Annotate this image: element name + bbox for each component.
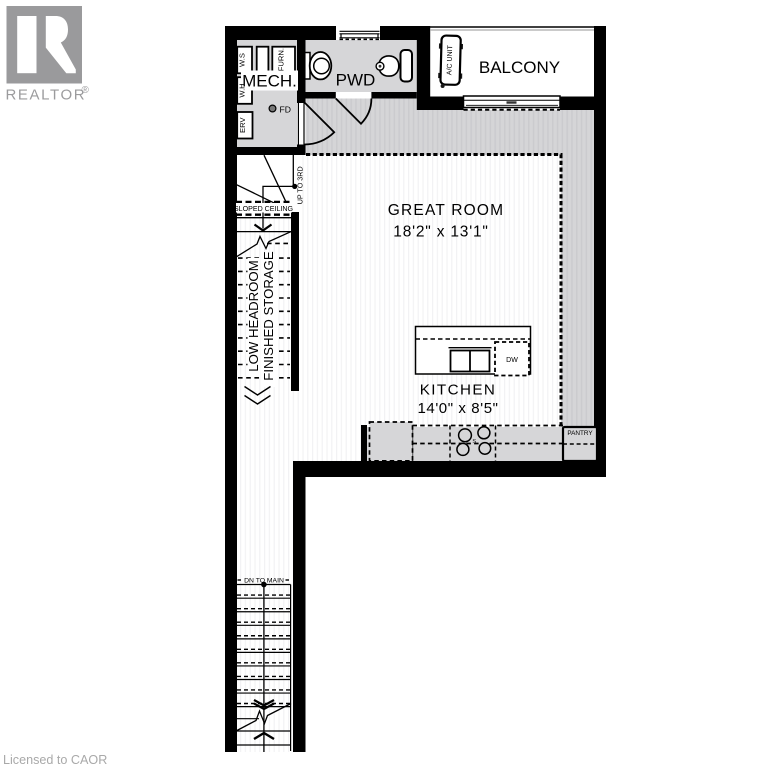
svg-text:Licensed to CAOR: Licensed to CAOR xyxy=(3,753,107,767)
svg-text:DW: DW xyxy=(506,357,518,364)
svg-text:SLOPED CEILING: SLOPED CEILING xyxy=(234,205,293,213)
svg-text:FINISHED STORAGE: FINISHED STORAGE xyxy=(261,251,276,381)
svg-text:®: ® xyxy=(82,85,90,96)
svg-text:ERV: ERV xyxy=(238,117,247,133)
svg-text:UP TO 3RD: UP TO 3RD xyxy=(296,166,305,204)
svg-text:BALCONY: BALCONY xyxy=(479,58,560,77)
svg-text:KITCHEN: KITCHEN xyxy=(420,382,496,399)
svg-text:A/C UNIT: A/C UNIT xyxy=(446,44,454,75)
svg-text:W.H: W.H xyxy=(238,83,247,97)
svg-text:PWD: PWD xyxy=(336,70,376,89)
svg-text:18'2" x 13'1": 18'2" x 13'1" xyxy=(393,224,488,241)
svg-text:GREAT ROOM: GREAT ROOM xyxy=(388,202,505,219)
svg-text:MECH.: MECH. xyxy=(242,72,297,91)
svg-text:PANTRY: PANTRY xyxy=(567,430,593,437)
svg-text:REALTOR: REALTOR xyxy=(6,87,87,104)
svg-text:W.S: W.S xyxy=(238,53,247,67)
svg-text:FURN.: FURN. xyxy=(277,48,286,71)
svg-text:FD: FD xyxy=(280,105,291,115)
svg-text:S: S xyxy=(472,439,476,445)
svg-text:14'0" x 8'5": 14'0" x 8'5" xyxy=(417,400,498,417)
svg-text:LOW HEADROOM: LOW HEADROOM xyxy=(246,260,261,371)
